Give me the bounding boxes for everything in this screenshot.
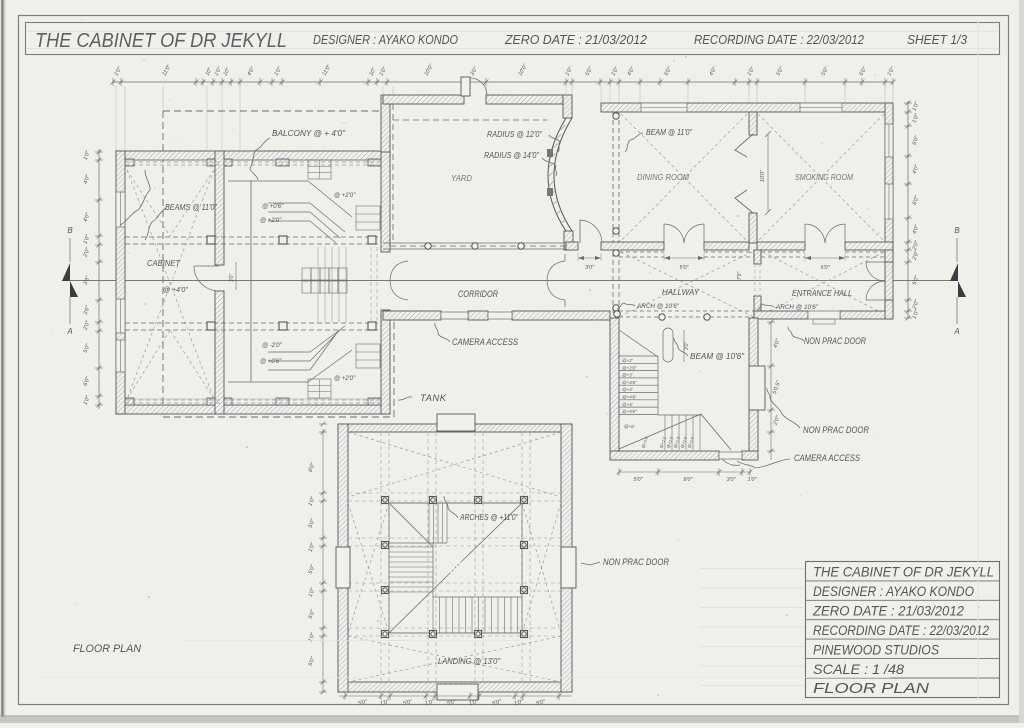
svg-text:ZERO DATE : 21/03/2012: ZERO DATE : 21/03/2012 [812,603,964,619]
svg-text:FLOOR PLAN: FLOOR PLAN [73,643,141,655]
svg-text:3'0": 3'0" [684,342,690,351]
svg-text:ARCHES @ +11'0": ARCHES @ +11'0" [459,513,519,522]
svg-text:@+5'6": @+5'6" [622,409,637,414]
svg-text:ENTRANCE HALL: ENTRANCE HALL [792,289,852,298]
svg-text:CAMERA ACCESS: CAMERA ACCESS [794,453,861,464]
svg-text:@+4': @+4' [622,387,633,392]
svg-text:5'0": 5'0" [820,265,830,271]
svg-text:@ +2'0": @ +2'0" [334,193,356,199]
svg-text:@+3': @+3' [622,373,633,378]
svg-text:3'0": 3'0" [585,265,595,271]
svg-text:7'0": 7'0" [737,272,743,281]
svg-text:NON PRAC DOOR: NON PRAC DOOR [804,336,866,347]
svg-text:RECORDING DATE : 22/03/2012: RECORDING DATE : 22/03/2012 [694,32,865,47]
svg-text:SMOKING ROOM: SMOKING ROOM [795,172,854,182]
svg-text:@+2'6": @+2'6" [622,365,637,370]
svg-text:NON PRAC DOOR: NON PRAC DOOR [803,425,869,436]
svg-text:ARCH @ 10'6": ARCH @ 10'6" [636,303,680,310]
svg-text:ARCH @ 10'6": ARCH @ 10'6" [775,304,819,311]
svg-text:3'0": 3'0" [229,274,235,283]
svg-text:THE CABINET OF DR JEKYLL: THE CABINET OF DR JEKYLL [813,564,994,580]
svg-text:10'0": 10'0" [760,169,766,182]
svg-text:PINEWOOD STUDIOS: PINEWOOD STUDIOS [813,641,940,657]
svg-text:1'0": 1'0" [747,477,757,483]
svg-text:@ +0'6": @ +0'6" [260,359,282,365]
svg-text:@ +0'6": @ +0'6" [262,204,284,210]
svg-text:NON PRAC DOOR: NON PRAC DOOR [603,557,669,568]
svg-text:BEAM @ 11'0": BEAM @ 11'0" [646,128,693,137]
svg-text:@ +4'0": @ +4'0" [163,287,188,294]
svg-text:5'0": 5'0" [679,265,689,271]
svg-text:SCALE : 1 /48: SCALE : 1 /48 [813,661,904,677]
svg-text:YARD: YARD [451,173,472,183]
svg-text:B: B [954,226,960,235]
svg-text:A: A [953,327,959,336]
svg-text:RECORDING DATE : 22/03/2012: RECORDING DATE : 22/03/2012 [813,623,989,638]
svg-text:BEAM @ 10'6": BEAM @ 10'6" [690,351,745,361]
svg-text:5'0": 5'0" [633,477,643,483]
svg-text:DESIGNER : AYAKO KONDO: DESIGNER : AYAKO KONDO [813,583,974,599]
svg-text:SHEET 1/3: SHEET 1/3 [907,32,968,47]
svg-text:TANK: TANK [420,393,447,404]
svg-text:@+3'6": @+3'6" [622,380,637,385]
svg-text:@ -2'0": @ -2'0" [262,343,283,349]
svg-text:@+6': @+6' [624,424,635,429]
svg-text:BALCONY @ + 4'0": BALCONY @ + 4'0" [272,128,346,138]
svg-text:DESIGNER : AYAKO KONDO: DESIGNER : AYAKO KONDO [313,32,458,47]
svg-text:CABINET: CABINET [147,258,181,268]
svg-text:ZERO DATE : 21/03/2012: ZERO DATE : 21/03/2012 [504,32,648,47]
svg-text:RADIUS @ 12'0": RADIUS @ 12'0" [487,130,543,139]
svg-text:8'0": 8'0" [683,477,693,483]
svg-text:CORRIDOR: CORRIDOR [458,289,498,299]
svg-text:@+5': @+5' [622,402,633,407]
svg-text:CAMERA ACCESS: CAMERA ACCESS [452,337,519,348]
svg-text:LANDING @ 13'0": LANDING @ 13'0" [438,656,501,666]
svg-text:B: B [67,226,73,235]
svg-text:DINING ROOM: DINING ROOM [637,172,690,182]
svg-text:BEAMS @ 11'0": BEAMS @ 11'0" [165,203,218,212]
svg-text:@+4'6": @+4'6" [622,395,637,400]
svg-text:HALLWAY: HALLWAY [662,288,700,297]
svg-text:@ +2'0": @ +2'0" [334,376,356,382]
svg-text:3'0": 3'0" [726,477,736,483]
svg-text:THE CABINET OF DR JEKYLL: THE CABINET OF DR JEKYLL [35,30,287,52]
svg-text:RADIUS @ 14'0": RADIUS @ 14'0" [484,151,540,160]
svg-text:A: A [66,327,72,336]
svg-text:FLOOR PLAN: FLOOR PLAN [813,680,929,697]
svg-text:@+2': @+2' [622,358,633,363]
svg-text:@ +2'0": @ +2'0" [260,218,282,224]
